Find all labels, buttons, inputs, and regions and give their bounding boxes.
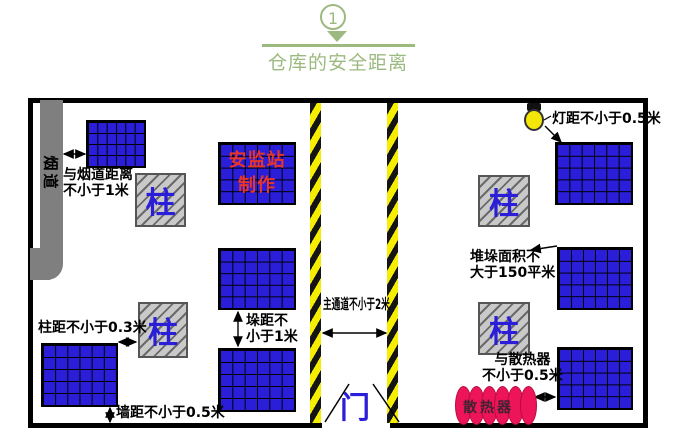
pillar-label: 柱 (148, 308, 178, 352)
title-underline (262, 44, 415, 47)
aisle-stripe-left (310, 103, 321, 423)
label-radiator-distance-line1: 与散热器 (494, 352, 550, 368)
label-pillar-distance: 柱距不小于0.3米 (38, 320, 147, 336)
maker-text-line1: 安监站 (229, 149, 286, 173)
pillar-label: 柱 (146, 178, 176, 222)
label-radiator-distance-line2: 不小于0.5米 (482, 368, 563, 384)
page-title: 仓库的安全距离 (230, 48, 446, 75)
label-flue-distance: 与烟道距离 不小于1米 (63, 167, 133, 199)
step-number-badge: 1 (320, 4, 346, 30)
stack-block-bottom-left (41, 343, 118, 407)
label-flue-distance-line1: 与烟道距离 (63, 167, 133, 183)
warehouse-safety-diagram: 1 仓库的安全距离 烟道 安监站 制作 柱 柱 柱 柱 散 (0, 0, 676, 447)
label-stack-distance-line2: 小于1米 (246, 329, 298, 345)
label-lamp-distance: 灯距不小于0.5米 (552, 111, 661, 127)
label-stack-area-line2: 大于150平米 (470, 265, 555, 281)
pillar-bottom-right: 柱 (478, 302, 530, 355)
label-stack-area-line1: 堆垛面积不 (470, 249, 540, 265)
radiator: 散热器 (455, 386, 537, 426)
pillar-top-right: 柱 (478, 175, 530, 227)
radiator-fin (520, 386, 537, 425)
label-wall-distance: 墙距不小于0.5米 (116, 405, 225, 421)
stack-block-top-left (86, 120, 146, 168)
label-main-aisle: 主通道不小于2米 (323, 297, 390, 313)
stack-block-mid-lower (218, 348, 296, 412)
arrow-lamp-to-stack (545, 126, 561, 142)
label-flue-distance-line2: 不小于1米 (63, 183, 129, 199)
radiator-label: 散热器 (463, 397, 514, 417)
stack-block-bottom-right (557, 347, 633, 410)
door-label: 门 (340, 383, 370, 427)
stack-block-maker: 安监站 制作 (218, 142, 296, 205)
maker-text-line2: 制作 (238, 174, 276, 198)
flue-label: 烟道 (41, 156, 62, 190)
pillar-top-left: 柱 (135, 173, 186, 227)
pillar-label: 柱 (489, 179, 519, 223)
lamp-bulb-icon (524, 109, 544, 131)
aisle-stripe-right (387, 103, 398, 423)
pillar-label: 柱 (489, 307, 519, 351)
label-stack-area: 堆垛面积不 大于150平米 (470, 249, 555, 281)
label-radiator-distance: 与散热器 不小于0.5米 (482, 352, 563, 384)
pointer-triangle-icon (327, 31, 347, 42)
stack-block-mid-upper (218, 248, 296, 310)
stack-block-top-right (555, 142, 633, 205)
label-stack-distance-line1: 垛距不 (246, 313, 288, 329)
lamp-label-connector (544, 116, 551, 120)
wall-top (28, 98, 648, 103)
stack-block-mid-right (557, 247, 633, 310)
wall-right (643, 98, 648, 428)
label-stack-distance: 垛距不 小于1米 (246, 313, 298, 345)
wall-bottom-left (28, 423, 322, 428)
